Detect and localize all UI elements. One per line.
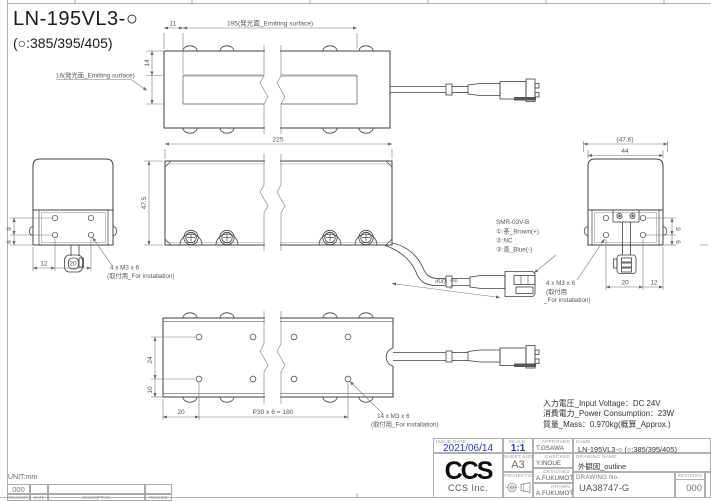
revision-table-revised-cell <box>145 484 172 494</box>
left-side-holes <box>52 215 93 237</box>
drawn-value: A.FUKUMOTO <box>534 490 572 497</box>
scale-cell: SCALE 1:1 <box>503 438 533 453</box>
revision-value: 000 <box>676 483 704 494</box>
spec-block: 入力電圧_Input Voltage：DC 24V 消費電力_Power Con… <box>543 399 674 430</box>
right-side-strain-relief <box>613 210 639 255</box>
revision-table-h4: REVISED <box>145 494 172 501</box>
revision-table-desc-cell <box>48 484 145 494</box>
approved-value: T.OSAWA <box>534 445 572 452</box>
dim-rside-12: 12 <box>650 280 658 287</box>
revision-table-h2: DATE <box>30 494 48 501</box>
dim-rside-6: 6 <box>674 240 681 244</box>
callout-rside-m3-line1: 4 x M3 x 6 <box>546 280 576 287</box>
company-logo-cell: CCS CCS Inc. <box>433 453 503 498</box>
spec-power: 消費電力_Power Consumption：23W <box>543 409 674 419</box>
dim-front-height: 47.5 <box>141 196 148 209</box>
callout-lside-m3-line2: (取付用_For installation) <box>107 271 175 280</box>
drawn-cell: DRAWN A.FUKUMOTO <box>533 483 573 498</box>
dim-top-11: 11 <box>170 21 177 28</box>
drawing-no-value: UA38747-G <box>574 483 674 494</box>
spec-mass: 質量_Mass：0.970kg(概算_Approx.) <box>543 420 674 430</box>
top-view: 11 195(発光面_Emitting surface) 14 16(発光面_E… <box>56 19 539 135</box>
revision-table-h3: DESCRIPTION <box>48 494 145 501</box>
callout-lside-m3-line1: 4 x M3 x 6 <box>110 265 140 272</box>
cable-top <box>390 79 539 102</box>
revision-table-value: 000 <box>7 484 30 494</box>
dim-rside-20: 20 <box>621 280 629 287</box>
revision-table-h1: REVISION <box>7 494 30 501</box>
callout-rside-m3-line2a: (取付用 <box>546 287 567 296</box>
dim-bottom-24: 24 <box>147 356 154 364</box>
bottom-view: 24 10 20 P30 x 6 = 180 14 x M3 x 6 (取付用_… <box>147 311 539 429</box>
dim-top-14: 14 <box>144 59 151 67</box>
dim-lside-6: 6 <box>6 240 13 244</box>
drawing-name-label: DRAWING NAME <box>574 454 710 460</box>
dim-bottom-10: 10 <box>147 386 154 394</box>
revision-edge-cell <box>705 472 711 498</box>
sheet-size-cell: SHEET SIZE A3 <box>503 453 533 472</box>
dim-cable-tol-upper: +50 <box>449 278 458 284</box>
spec-input-voltage: 入力電圧_Input Voltage：DC 24V <box>543 399 674 409</box>
dim-rside-44: 44 <box>621 148 629 155</box>
dim-lside-12: 12 <box>40 261 48 268</box>
callout-top-16: 16(発光面_Emitting surface) <box>56 71 135 80</box>
drawing-title-variants: (○:385/395/405) <box>13 35 113 51</box>
designed-cell: DESIGNED A.FUKUMOTO <box>533 468 573 483</box>
revision-cell: REVISION 000 <box>675 472 705 498</box>
dim-rside-476: (47.6) <box>616 137 633 144</box>
designed-value: A.FUKUMOTO <box>534 475 572 482</box>
approved-cell: APPROVED T.OSAWA <box>533 438 573 453</box>
drawing-no-label: DRAWING No. <box>574 473 674 481</box>
callout-pin3: ③:青_Blue(-) <box>496 245 532 254</box>
dim-rside-9: 9 <box>674 227 681 231</box>
drawing-no-cell: DRAWING No. UA38747-G <box>573 472 675 498</box>
front-view-dims <box>144 144 556 298</box>
dim-bottom-20: 20 <box>177 409 185 416</box>
front-view: 225 47.5 300 +50 0 SMR-03V-B ①:茶_Brown(+… <box>141 137 556 298</box>
unit-note: UNIT:mm <box>8 474 37 481</box>
right-side-view: (47.6) 44 9 6 20 12 4 x M3 x 6 (取付用 _For… <box>543 137 681 305</box>
dim-bottom-pitch: P30 x 6 = 180 <box>253 409 294 416</box>
callout-bottom-m3-line2: (取付用_For installation) <box>371 420 439 429</box>
dim-cable-tol-lower: 0 <box>450 285 454 290</box>
revision-table-date-cell <box>30 484 48 494</box>
drawing-name-cell: DRAWING NAME 外観図_outline <box>573 453 711 472</box>
sheet-size-value: A3 <box>504 459 532 471</box>
right-side-connector <box>614 255 637 274</box>
ccs-logo: CCS <box>434 459 502 483</box>
dim-lside-20: 20 <box>69 261 77 268</box>
callout-pin2: ②:NC <box>496 238 513 245</box>
checked-value: Y.INOUE <box>534 460 572 467</box>
drawing-name-value: 外観図_outline <box>574 461 710 472</box>
revision-label: REVISION <box>676 473 704 480</box>
callout-pin1: ①:茶_Brown(+) <box>496 227 539 236</box>
callout-connector-model: SMR-03V-B <box>496 219 529 226</box>
cable-bottom <box>386 346 539 369</box>
callout-rside-m3-line2b: _For installation) <box>543 297 591 304</box>
checked-cell: CHECKED Y.INOUE <box>533 453 573 468</box>
callout-bottom-m3-line1: 14 x M3 x 6 <box>377 413 410 420</box>
dim-cable-length: 300 <box>434 277 446 285</box>
projection-cell: PROJECTION <box>503 472 533 498</box>
dim-lside-9: 9 <box>6 227 13 231</box>
projection-symbol <box>504 479 533 496</box>
name-cell: NAME LN-195VL3-○ (○:385/395/405) <box>573 438 711 453</box>
drawing-title-model: LN-195VL3-○ <box>13 8 138 31</box>
dim-front-width: 225 <box>272 137 283 144</box>
dim-top-195: 195(発光面_Emitting surface) <box>227 19 313 28</box>
issue-date-cell: ISSUE DATE 2021/06/14 <box>433 438 503 453</box>
